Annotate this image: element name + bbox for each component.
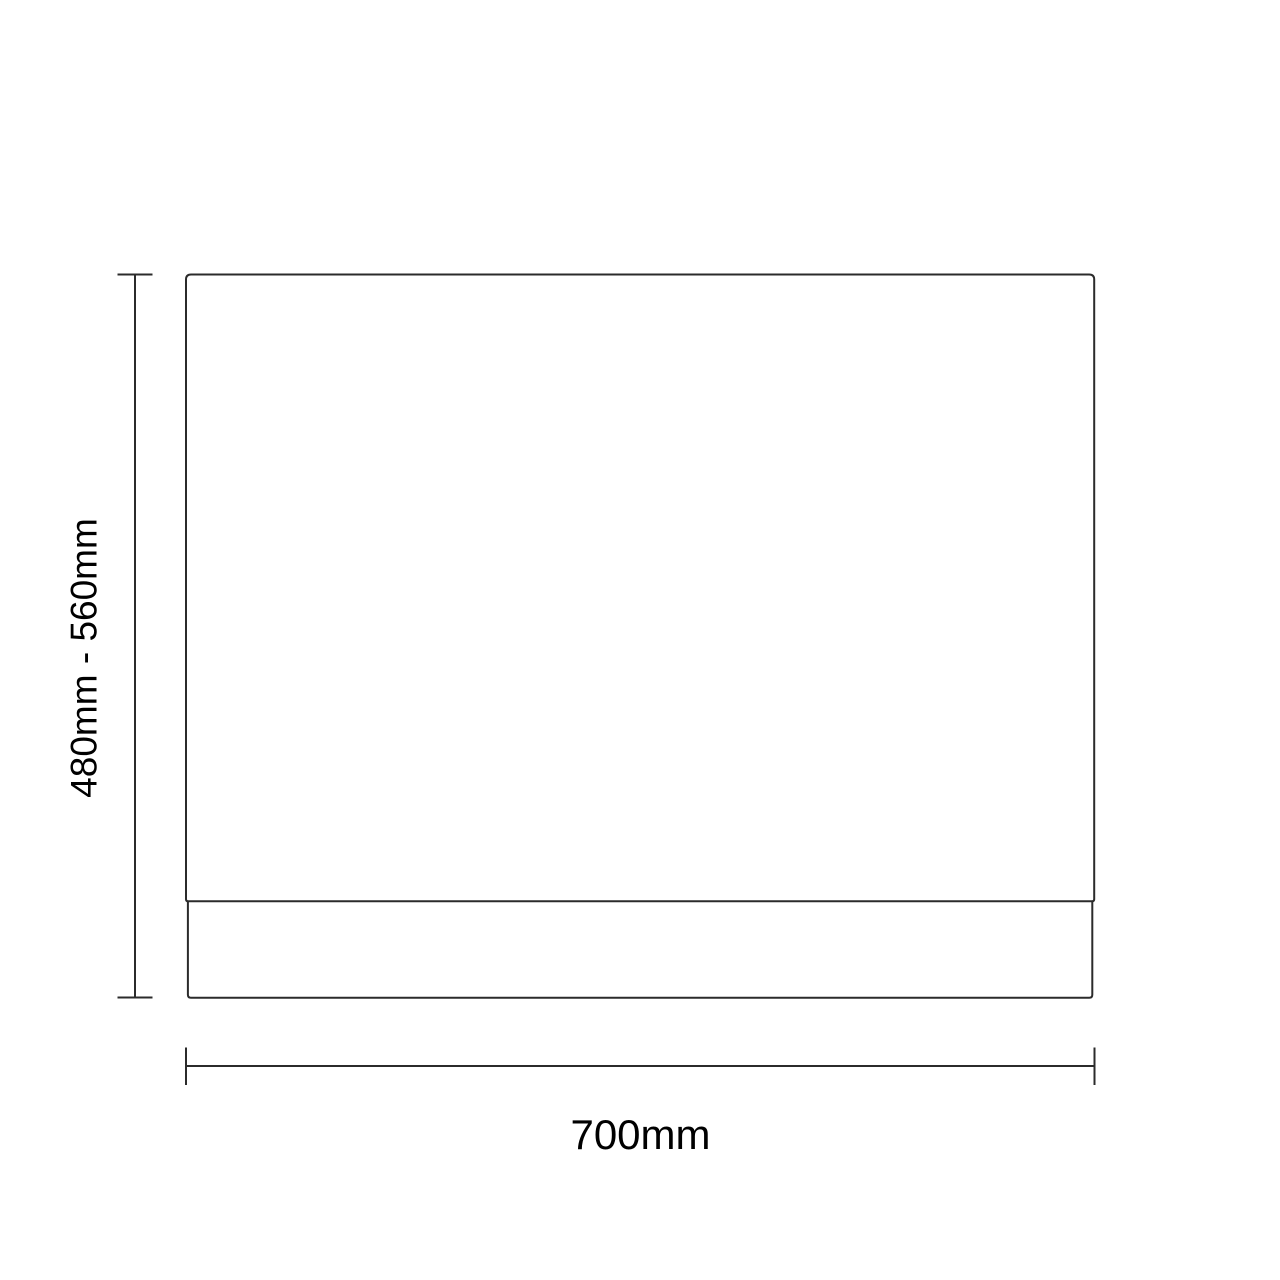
svg-text:480mm - 560mm: 480mm - 560mm xyxy=(64,518,105,798)
svg-text:700mm: 700mm xyxy=(570,1111,710,1158)
